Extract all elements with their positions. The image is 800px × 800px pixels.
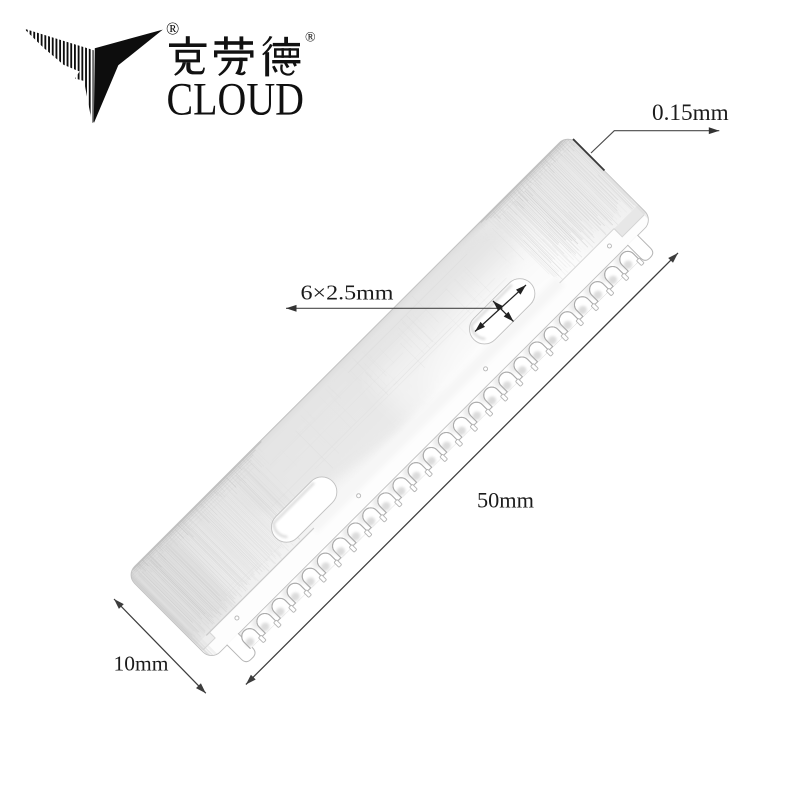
svg-text:0.15mm: 0.15mm xyxy=(652,100,729,126)
svg-text:6×2.5mm: 6×2.5mm xyxy=(301,281,394,305)
svg-text:CLOUD: CLOUD xyxy=(167,74,305,126)
svg-text:®: ® xyxy=(166,19,179,39)
svg-text:50mm: 50mm xyxy=(477,488,534,513)
svg-text:®: ® xyxy=(305,31,316,46)
svg-text:10mm: 10mm xyxy=(114,652,169,676)
